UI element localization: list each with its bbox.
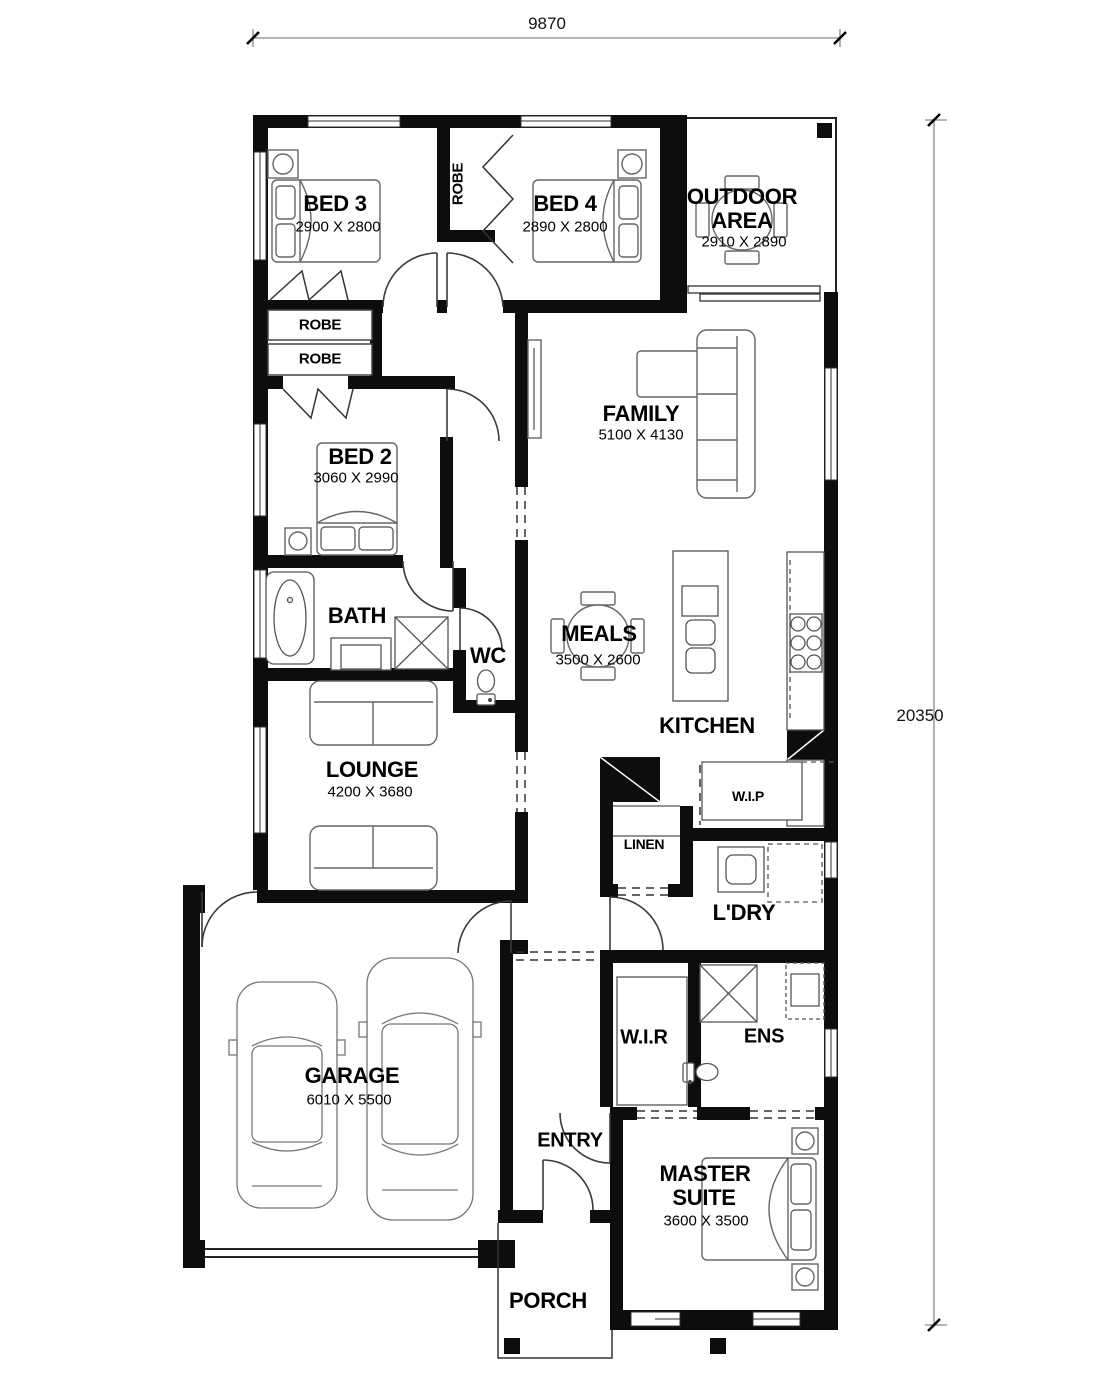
linen-shelves [613,806,680,836]
dimension-height-label: 20350 [896,706,943,726]
wc-toilet [477,670,495,705]
room-label-ens: ENS [744,1026,784,1049]
room-label-bed3: BED 3 [303,191,366,217]
room-label-ldry: L'DRY [713,900,776,926]
sliding-door [688,286,820,301]
robe-label-bed34: ROBE [450,163,467,205]
car-right [359,958,481,1220]
ens-shower [700,965,757,1022]
robe-label-bottom: ROBE [299,351,341,368]
room-size-lounge: 4200 X 3680 [327,784,412,801]
room-size-bed3: 2900 X 2800 [295,219,380,236]
room-label-bath: BATH [328,603,386,629]
room-label-kitchen: KITCHEN [659,713,755,739]
room-size-family: 5100 X 4130 [598,427,683,444]
bathtub [266,572,314,664]
room-label-master-line2: SUITE [672,1185,735,1211]
room-label-garage: GARAGE [305,1063,400,1089]
garage-door [205,1249,478,1257]
room-label-bed4: BED 4 [533,191,596,217]
kitchen-island [673,551,728,701]
bath-shower [395,617,448,669]
laundry-tub [718,844,822,902]
outdoor-post [817,123,832,138]
lounge-sofa-bottom [310,826,437,890]
room-size-master: 3600 X 3500 [663,1213,748,1230]
room-label-porch: PORCH [509,1288,587,1314]
room-size-bed2: 3060 X 2990 [313,470,398,487]
room-label-wip: W.I.P [732,788,764,804]
room-size-garage: 6010 X 5500 [306,1092,391,1109]
path-post [710,1338,726,1354]
room-size-meals: 3500 X 2600 [555,652,640,669]
room-label-outdoor-line1: OUTDOOR [687,184,797,210]
room-label-master-line1: MASTER [659,1161,750,1187]
porch-post [504,1338,520,1354]
bath-vanity [331,638,391,670]
floor-plan: 9870 20350 BED 3 2900 X 2800 BED 4 2890 … [0,0,1120,1400]
lounge-sofa-top [310,681,437,745]
room-label-wc: WC [470,643,506,669]
room-label-family: FAMILY [603,401,680,427]
dimension-width-label: 9870 [528,14,566,34]
room-label-bed2: BED 2 [328,444,391,470]
tv-unit [528,340,541,438]
robe-label-top: ROBE [299,317,341,334]
room-label-linen: LINEN [624,836,665,852]
room-size-bed4: 2890 X 2800 [522,219,607,236]
ens-vanity [786,963,824,1019]
room-label-meals: MEALS [561,621,637,647]
room-size-outdoor: 2910 X 2890 [701,234,786,251]
room-label-lounge: LOUNGE [326,757,418,783]
room-label-wir: W.I.R [620,1027,667,1050]
room-label-outdoor-line2: AREA [711,208,772,234]
room-label-entry: ENTRY [537,1130,603,1153]
